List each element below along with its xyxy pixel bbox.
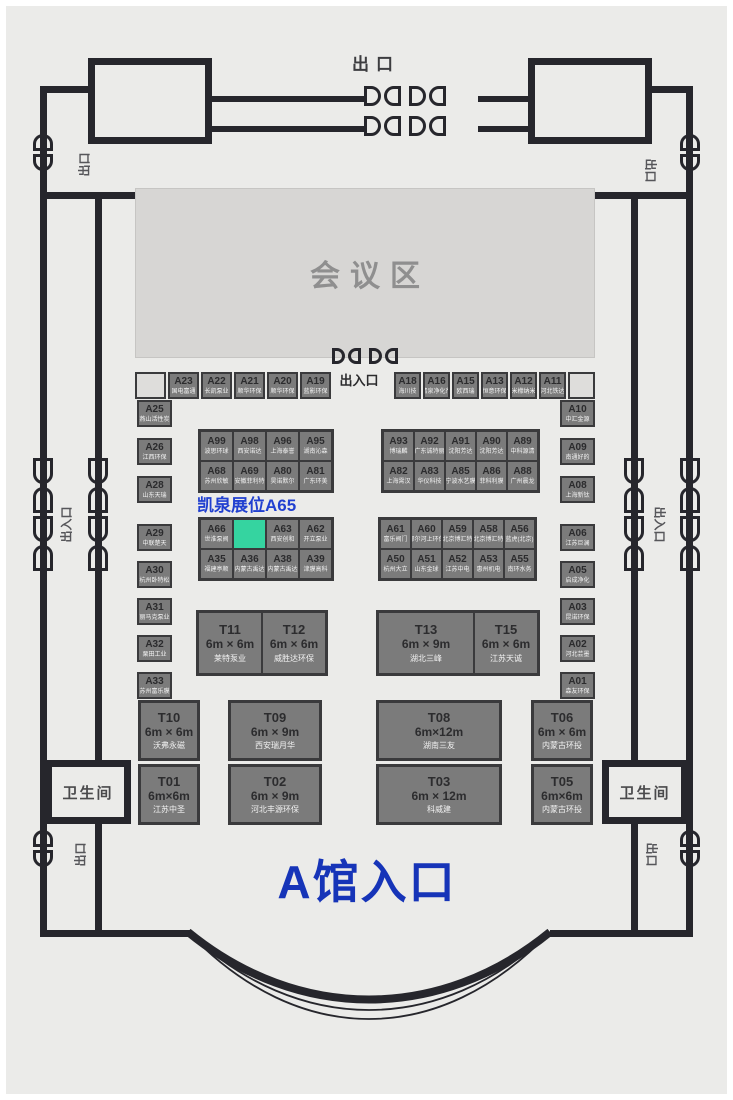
booth-cell: A32 栗田工业 <box>137 635 172 662</box>
booth-id: A61 <box>386 525 404 535</box>
booth-id: A59 <box>448 525 466 535</box>
booth-name: 欧西瑞 <box>456 389 474 395</box>
door-leaf-icon <box>429 86 446 106</box>
booth-name: 杭州卧特松 <box>139 578 169 584</box>
booth-id: A38 <box>273 555 291 565</box>
booth-cell: A19 蓝影环保 <box>300 372 331 399</box>
booth-size: 6m × 6m <box>270 638 318 652</box>
booth-name: 福建亭顺 <box>204 567 228 573</box>
booth-block-upper-right: A93 博瑞麟 A92 广东诚特丽 A91 沈阳芳达 A90 沈阳芳达 A89 … <box>381 429 540 493</box>
booth-name: 西安诺达 <box>237 449 261 455</box>
booth-cell: A36 内蒙古禹达 <box>234 550 265 578</box>
booth-name: 威胜达环保 <box>274 655 314 663</box>
booth-cell: A95 湖南沁森 <box>300 432 331 460</box>
exit-top-label: 出口 <box>352 50 400 75</box>
booth-name: 燕山活性炭 <box>139 417 169 423</box>
booth-id: A18 <box>398 377 416 387</box>
wall <box>210 126 366 132</box>
booth-size: 6m × 6m <box>482 638 530 652</box>
door-leaf-icon <box>88 545 108 571</box>
booth-id: A39 <box>306 555 324 565</box>
booth-id: A32 <box>145 640 163 650</box>
booth-cell: A02 河北芸墨 <box>560 635 595 662</box>
booth-size: 6m × 6m <box>206 638 254 652</box>
booth-cell: A11 河北铁达 <box>539 372 566 399</box>
booth-name: 西安瑞月华 <box>255 742 295 750</box>
door-leaf-icon <box>624 516 644 542</box>
booth-name: 河北芸墨 <box>565 652 589 658</box>
booth-size: 6m × 6m <box>145 726 193 740</box>
door-leaf-icon <box>429 116 446 136</box>
booth-name: 国电富通 <box>171 389 195 395</box>
wall <box>593 192 693 199</box>
wall <box>631 823 638 937</box>
booth-name: 丽马克泵业 <box>139 615 169 621</box>
booth-id: T12 <box>283 623 305 638</box>
booth-id: A11 <box>544 377 562 387</box>
door-leaf-icon <box>88 487 108 513</box>
door-leaf-icon <box>348 348 361 364</box>
door-leaf-icon <box>680 830 700 847</box>
booth-name: 江苏中圣 <box>153 806 185 814</box>
booth-name: 湖北三峰 <box>410 655 442 663</box>
booth-id: A53 <box>479 555 497 565</box>
swing-door-icon <box>88 458 108 571</box>
booth-size: 6m × 9m <box>251 790 299 804</box>
booth-name: 津膜高科 <box>303 567 327 573</box>
door-leaf-icon <box>88 458 108 484</box>
wall <box>210 96 366 102</box>
booth-id: A16 <box>427 377 445 387</box>
booth-id: A31 <box>145 603 163 613</box>
booth-name: 波思环球 <box>204 449 228 455</box>
booth-id: A62 <box>306 525 324 535</box>
swing-door-icon <box>33 458 53 571</box>
door-leaf-icon <box>680 850 700 867</box>
booth-cell: A13 恒意环保 <box>481 372 508 399</box>
door-leaf-icon <box>680 154 700 171</box>
booth-id: A03 <box>568 603 586 613</box>
booth-id: A80 <box>273 467 291 477</box>
booth-cell: A52 江苏中电 <box>443 550 472 578</box>
booth-cell: A31 丽马克泵业 <box>137 598 172 625</box>
booth-id: T06 <box>551 711 573 726</box>
booth-cell: A69 安徽菲利特 <box>234 462 265 490</box>
booth-cell: A23 国电富通 <box>168 372 199 399</box>
t-booth-cell: T15 6m × 6m 江苏天诚 <box>475 613 537 673</box>
booth-cell: A59 北京博汇特 <box>443 520 472 548</box>
booth-name: 恒意环保 <box>483 389 507 395</box>
door-leaf-icon <box>33 516 53 542</box>
booth-size: 6m × 9m <box>251 726 299 740</box>
booth-id: A93 <box>389 437 407 447</box>
booth-id: A51 <box>417 555 435 565</box>
booth-name: 清泉净化剂 <box>423 389 450 395</box>
swing-door-icon <box>624 458 644 571</box>
booth-id: T15 <box>495 623 517 638</box>
restroom-left: 卫生间 <box>45 760 131 824</box>
booth-cell: A90 沈阳芳达 <box>477 432 506 460</box>
booth-id: A28 <box>145 481 163 491</box>
booth-name: 莱特泵业 <box>214 655 246 663</box>
door-leaf-icon <box>33 850 53 867</box>
booth-name: 惠州机电 <box>476 567 500 573</box>
booth-name: 内蒙古禹达 <box>234 567 264 573</box>
booth-cell: A81 广东环美 <box>300 462 331 490</box>
booth-id: T05 <box>551 775 573 790</box>
booth-name: 富乐阀门 <box>383 537 407 543</box>
booth-name: 启成净化 <box>565 578 589 584</box>
booth-id: A60 <box>417 525 435 535</box>
door-leaf-icon <box>364 116 381 136</box>
booth-cell: A61 富乐阀门 <box>381 520 410 548</box>
booth-name: 米檬纳米 <box>512 389 536 395</box>
booth-name: 上海新钛 <box>565 493 589 499</box>
exit-side-bottom-left-label: 出口 <box>72 842 89 866</box>
booth-id: T09 <box>264 711 286 726</box>
booth-T01: T01 6m×6m 江苏中圣 <box>138 764 200 825</box>
booth-name: 中联楚天 <box>142 541 166 547</box>
booth-name: 内蒙古环投 <box>542 742 582 750</box>
booth-name: 山东天瑞 <box>142 493 166 499</box>
booth-id: A25 <box>145 405 163 415</box>
swing-door-icon <box>364 86 446 106</box>
booth-id: A98 <box>240 437 258 447</box>
booth-id: A88 <box>513 467 531 477</box>
t-booth-cell: T12 6m × 6m 威胜达环保 <box>263 613 325 673</box>
swing-door-icon <box>364 116 446 136</box>
booth-id: A15 <box>456 377 474 387</box>
booth-cell: A88 广州晨龙 <box>508 462 537 490</box>
door-leaf-icon <box>624 487 644 513</box>
booth-cell: A03 昆诺环保 <box>560 598 595 625</box>
entrance-side-left-label: 出入口 <box>58 506 75 542</box>
booth-cell: A85 宁波水艺膜 <box>446 462 475 490</box>
exit-side-top-right-label: 出口 <box>643 158 660 182</box>
door-leaf-icon <box>33 458 53 484</box>
entrance-center-label: 出入口 <box>330 370 388 389</box>
booth-id: A68 <box>207 467 225 477</box>
booth-cell: A89 中科源清 <box>508 432 537 460</box>
swing-door-icon <box>680 830 700 867</box>
wall <box>40 192 140 199</box>
booth-cell: A66 世淮泵阀 <box>201 520 232 548</box>
booth-id: A06 <box>568 529 586 539</box>
floor-plan: 出口 会议区 出入口 A23 国电富通 A22 长凯泵业 <box>0 0 733 1100</box>
booth-id: A50 <box>386 555 404 565</box>
booth-name: 昆诺环保 <box>565 615 589 621</box>
booth-name: 鄂尔河上环保 <box>412 537 441 543</box>
booth-id: A08 <box>568 481 586 491</box>
booth-cell: A26 江西环保 <box>137 438 172 465</box>
swing-door-icon <box>680 458 700 571</box>
booth-name: 华仪科技 <box>417 479 441 485</box>
booth-id: A33 <box>145 677 163 687</box>
booth-T02: T02 6m × 9m 河北丰源环保 <box>228 764 322 825</box>
booth-name: 长凯泵业 <box>204 389 228 395</box>
t-booth-cell: T13 6m × 9m 湖北三峰 <box>379 613 473 673</box>
booth-name: 沈阳芳达 <box>448 449 472 455</box>
booth-cell: A65 <box>234 520 265 548</box>
booth-cell: A60 鄂尔河上环保 <box>412 520 441 548</box>
booth-id: A05 <box>568 566 586 576</box>
door-leaf-icon <box>332 348 345 364</box>
booth-size: 6m×6m <box>541 790 583 804</box>
booth-name: 蓝虎(北京) <box>506 537 534 543</box>
booth-cell <box>135 372 166 399</box>
booth-cell: A68 苏州欣敏 <box>201 462 232 490</box>
booth-cell: A16 清泉净化剂 <box>423 372 450 399</box>
booth-cell: A58 北京博汇特 <box>474 520 503 548</box>
booth-name: 内蒙古禹达 <box>267 567 297 573</box>
wall <box>95 823 102 937</box>
booth-id: A58 <box>479 525 497 535</box>
booth-cell: A29 中联楚天 <box>137 524 172 551</box>
booth-name: 蓝影环保 <box>303 389 327 395</box>
booth-id: A95 <box>306 437 324 447</box>
booth-cell: A33 苏州富乐膜 <box>137 672 172 699</box>
booth-cell: A96 上海泰誉 <box>267 432 298 460</box>
booth-id: A66 <box>207 525 225 535</box>
booth-cell: A05 启成净化 <box>560 561 595 588</box>
booth-T05: T05 6m×6m 内蒙古环投 <box>531 764 593 825</box>
booth-id: A55 <box>510 555 528 565</box>
booth-id: A36 <box>240 555 258 565</box>
door-leaf-icon <box>409 86 426 106</box>
booth-name: 北京博汇特 <box>474 537 503 543</box>
door-leaf-icon <box>385 348 398 364</box>
booth-cell: A22 长凯泵业 <box>201 372 232 399</box>
conference-label: 会议区 <box>300 251 430 295</box>
t-booth-cell: T11 6m × 6m 莱特泵业 <box>199 613 261 673</box>
booth-cell: A38 内蒙古禹达 <box>267 550 298 578</box>
entrance-side-right-label: 出入口 <box>652 506 669 542</box>
top-right-room <box>528 58 652 144</box>
door-leaf-icon <box>624 545 644 571</box>
entrance-arc <box>178 924 560 1024</box>
booth-size: 6m × 12m <box>411 790 466 804</box>
booth-cell: A12 米檬纳米 <box>510 372 537 399</box>
booth-name: 江苏中电 <box>445 567 469 573</box>
booth-id: A22 <box>207 377 225 387</box>
door-leaf-icon <box>369 348 382 364</box>
booth-row-top-right: A18 海川技 A16 清泉净化剂 A15 欧西瑞 A13 恒意环保 A12 米… <box>394 372 595 399</box>
booth-T10: T10 6m × 6m 沃弗永磁 <box>138 700 200 761</box>
door-leaf-icon <box>384 116 401 136</box>
door-leaf-icon <box>33 830 53 847</box>
booth-name: 湖南沁森 <box>303 449 327 455</box>
booth-cell: A35 福建亭顺 <box>201 550 232 578</box>
door-leaf-icon <box>680 134 700 151</box>
booth-name: 广州晨龙 <box>510 479 534 485</box>
booth-name: 安徽菲利特 <box>234 479 264 485</box>
hall-entrance-label: A馆入口 <box>202 846 532 912</box>
booth-id: T11 <box>219 623 241 638</box>
booth-cell: A08 上海新钛 <box>560 476 595 503</box>
booth-cell: A39 津膜高科 <box>300 550 331 578</box>
swing-door-icon <box>33 134 53 171</box>
booth-id: T03 <box>428 775 450 790</box>
booth-T09: T09 6m × 9m 西安瑞月华 <box>228 700 322 761</box>
booth-name: 南环水务 <box>507 567 531 573</box>
booth-cell: A28 山东天瑞 <box>137 476 172 503</box>
booth-cell: A18 海川技 <box>394 372 421 399</box>
booth-id: A86 <box>482 467 500 477</box>
restroom-right: 卫生间 <box>602 760 688 824</box>
booth-cell <box>568 372 595 399</box>
booth-name: 顺华环保 <box>270 389 294 395</box>
wall <box>40 930 190 937</box>
booth-name: 菲科利膜 <box>479 479 503 485</box>
booth-id: A83 <box>420 467 438 477</box>
booth-id: A26 <box>145 443 163 453</box>
booth-id: A90 <box>482 437 500 447</box>
booth-id: A09 <box>568 443 586 453</box>
door-leaf-icon <box>88 516 108 542</box>
booth-id: A82 <box>389 467 407 477</box>
booth-cell: A62 开立泵业 <box>300 520 331 548</box>
booth-name: 北京博汇特 <box>443 537 472 543</box>
booth-cell: A25 燕山活性炭 <box>137 400 172 427</box>
swing-door-icon <box>33 830 53 867</box>
booth-column-right-bottom: A06 江苏巨澜 A05 启成净化 A03 昆诺环保 A02 河北芸墨 A01 … <box>560 524 595 699</box>
booth-column-left-bottom: A29 中联楚天 A30 杭州卧特松 A31 丽马克泵业 A32 栗田工业 A3… <box>137 524 172 699</box>
door-leaf-icon <box>624 458 644 484</box>
booth-id: A92 <box>420 437 438 447</box>
booth-name: 上海霄汉 <box>386 479 410 485</box>
booth-name: 苏州欣敏 <box>204 479 228 485</box>
booth-name: 中汇金源 <box>565 417 589 423</box>
swing-door-icon <box>332 348 398 364</box>
booth-name: 西安创和 <box>270 537 294 543</box>
booth-name: 科威建 <box>427 806 451 814</box>
booth-id: A12 <box>514 377 532 387</box>
t-booth-block-a: T11 6m × 6m 莱特泵业 T12 6m × 6m 威胜达环保 <box>196 610 328 676</box>
booth-id: A21 <box>240 377 258 387</box>
booth-cell: A30 杭州卧特松 <box>137 561 172 588</box>
highlight-booth-label: 凯泉展位A65 <box>197 491 296 516</box>
booth-row-top-left: A23 国电富通 A22 长凯泵业 A21 顺华环保 A20 顺华环保 A19 … <box>135 372 331 399</box>
booth-name: 顺华环保 <box>237 389 261 395</box>
booth-id: A96 <box>273 437 291 447</box>
booth-id: A89 <box>513 437 531 447</box>
booth-id: T13 <box>415 623 437 638</box>
booth-id: T02 <box>264 775 286 790</box>
booth-T06: T06 6m × 6m 内蒙古环投 <box>531 700 593 761</box>
booth-name: 河北铁达 <box>541 389 565 395</box>
booth-id: A29 <box>145 529 163 539</box>
booth-id: T08 <box>428 711 450 726</box>
booth-block-mid-right: A61 富乐阀门 A60 鄂尔河上环保 A59 北京博汇特 A58 北京博汇特 … <box>378 517 537 581</box>
booth-id: A35 <box>207 555 225 565</box>
booth-name: 海川技 <box>398 389 416 395</box>
booth-cell: A10 中汇金源 <box>560 400 595 427</box>
booth-name: 江苏巨澜 <box>565 541 589 547</box>
booth-id: A91 <box>451 437 469 447</box>
booth-T03: T03 6m × 12m 科威建 <box>376 764 502 825</box>
booth-id: A56 <box>510 525 528 535</box>
booth-id: T10 <box>158 711 180 726</box>
booth-name: 苏州富乐膜 <box>139 689 169 695</box>
wall <box>478 126 530 132</box>
booth-cell: A15 欧西瑞 <box>452 372 479 399</box>
booth-id: A13 <box>485 377 503 387</box>
booth-cell: A51 山东金球 <box>412 550 441 578</box>
booth-size: 6m × 6m <box>538 726 586 740</box>
booth-name: 沈阳芳达 <box>479 449 503 455</box>
door-leaf-icon <box>33 487 53 513</box>
booth-cell: A20 顺华环保 <box>267 372 298 399</box>
door-leaf-icon <box>680 458 700 484</box>
booth-cell: A86 菲科利膜 <box>477 462 506 490</box>
booth-id: A23 <box>174 377 192 387</box>
door-leaf-icon <box>33 154 53 171</box>
booth-column-right-top: A10 中汇金源 A09 南通好的 A08 上海新钛 <box>560 400 595 503</box>
booth-name: 森友环保 <box>565 689 589 695</box>
booth-cell: A91 沈阳芳达 <box>446 432 475 460</box>
wall <box>478 96 530 102</box>
door-leaf-icon <box>33 134 53 151</box>
booth-name: 广东诚特丽 <box>415 449 444 455</box>
booth-size: 6m × 9m <box>402 638 450 652</box>
booth-name: 湖南三友 <box>423 742 455 750</box>
booth-name: 南通好的 <box>565 455 589 461</box>
booth-block-upper-left: A99 波思环球 A98 西安诺达 A96 上海泰誉 A95 湖南沁森 A68 … <box>198 429 334 493</box>
booth-name: 河北丰源环保 <box>251 806 299 814</box>
booth-id: A85 <box>451 467 469 477</box>
booth-name: 内蒙古环投 <box>542 806 582 814</box>
booth-id: A81 <box>306 467 324 477</box>
booth-name: 中科源清 <box>510 449 534 455</box>
booth-cell: A55 南环水务 <box>505 550 534 578</box>
booth-size: 6m×12m <box>415 726 463 740</box>
door-leaf-icon <box>364 86 381 106</box>
booth-name: 江西环保 <box>142 455 166 461</box>
exit-side-bottom-right-label: 出口 <box>644 842 661 866</box>
booth-name: 开立泵业 <box>303 537 327 543</box>
booth-name: 沃弗永磁 <box>153 742 185 750</box>
booth-name: 江苏天诚 <box>490 655 522 663</box>
booth-cell: A99 波思环球 <box>201 432 232 460</box>
door-leaf-icon <box>409 116 426 136</box>
booth-cell: A92 广东诚特丽 <box>415 432 444 460</box>
booth-id: A30 <box>145 566 163 576</box>
booth-id: A99 <box>207 437 225 447</box>
booth-cell: A83 华仪科技 <box>415 462 444 490</box>
booth-cell: A09 南通好的 <box>560 438 595 465</box>
booth-id: A20 <box>273 377 291 387</box>
booth-name: 广东环美 <box>303 479 327 485</box>
booth-cell: A93 博瑞麟 <box>384 432 413 460</box>
booth-id: A69 <box>240 467 258 477</box>
booth-id: A63 <box>273 525 291 535</box>
booth-cell: A82 上海霄汉 <box>384 462 413 490</box>
booth-name: 宁波水艺膜 <box>446 479 475 485</box>
booth-id: A02 <box>568 640 586 650</box>
booth-column-left-top: A25 燕山活性炭 A26 江西环保 A28 山东天瑞 <box>137 400 172 503</box>
booth-cell: A63 西安创和 <box>267 520 298 548</box>
booth-name: 世淮泵阀 <box>204 537 228 543</box>
booth-T08: T08 6m×12m 湖南三友 <box>376 700 502 761</box>
booth-name: 上海泰誉 <box>270 449 294 455</box>
booth-cell: A56 蓝虎(北京) <box>505 520 534 548</box>
top-left-room <box>88 58 212 144</box>
door-leaf-icon <box>680 487 700 513</box>
booth-id: A01 <box>568 677 586 687</box>
booth-cell: A80 昊诺默尔 <box>267 462 298 490</box>
booth-cell: A98 西安诺达 <box>234 432 265 460</box>
booth-cell: A53 惠州机电 <box>474 550 503 578</box>
